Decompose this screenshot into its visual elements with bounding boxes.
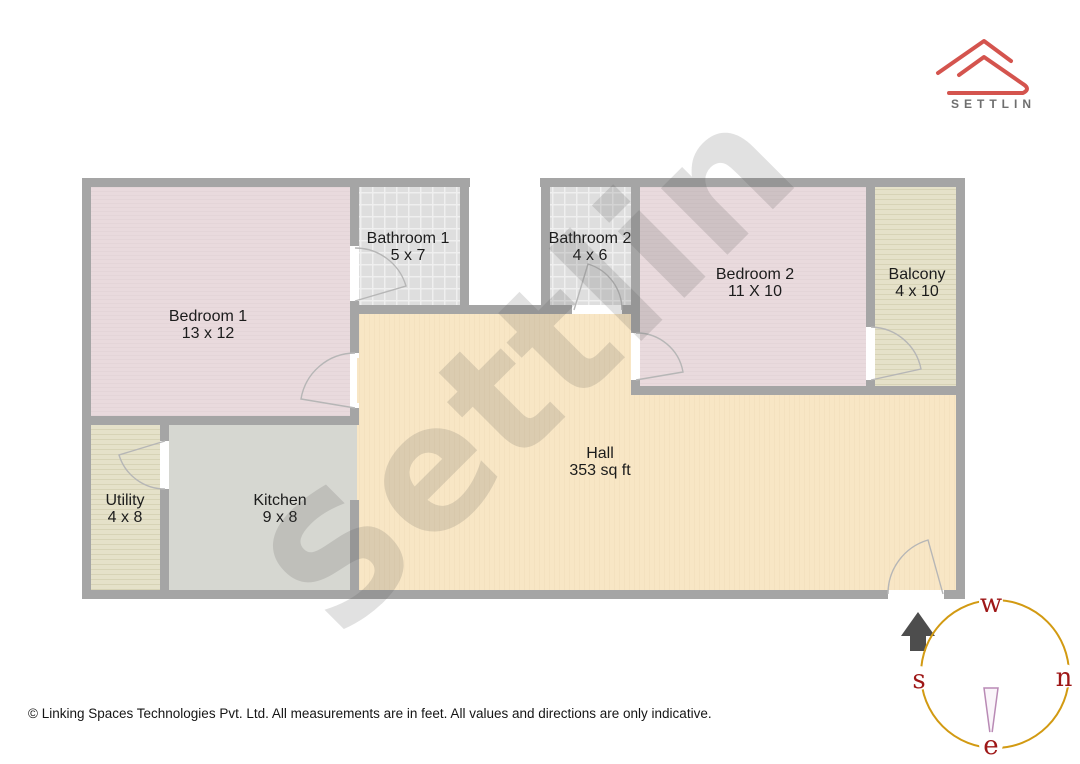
bedroom1-floor [91, 187, 350, 416]
copyright-disclaimer: © Linking Spaces Technologies Pvt. Ltd. … [28, 706, 712, 721]
room-dims: 13 x 12 [169, 325, 247, 342]
floorplan-page: w s n e Bedroom 1 13 x 12 Bathroom 1 5 x… [0, 0, 1080, 764]
room-label-bathroom-1: Bathroom 1 5 x 7 [367, 230, 450, 264]
settlin-logo-icon [938, 41, 1027, 93]
room-name: Kitchen [253, 492, 306, 509]
room-label-bedroom-2: Bedroom 2 11 X 10 [716, 266, 794, 300]
room-name: Bedroom 1 [169, 308, 247, 325]
compass-south-label: s [912, 665, 925, 695]
room-dims: 5 x 7 [367, 247, 450, 264]
room-label-hall: Hall 353 sq ft [569, 445, 630, 479]
room-name: Bathroom 1 [367, 230, 450, 247]
room-name: Balcony [889, 266, 946, 283]
compass-west-label: w [980, 589, 1002, 619]
room-label-balcony: Balcony 4 x 10 [889, 266, 946, 300]
compass-east-label: e [983, 731, 998, 761]
room-dims: 353 sq ft [569, 462, 630, 479]
room-dims: 4 x 6 [549, 247, 632, 264]
floorplan-drawing: w s n e [0, 0, 1080, 764]
room-name: Bathroom 2 [549, 230, 632, 247]
room-name: Utility [105, 492, 144, 509]
room-label-utility: Utility 4 x 8 [105, 492, 144, 526]
room-dims: 4 x 8 [105, 509, 144, 526]
room-name: Hall [569, 445, 630, 462]
room-label-kitchen: Kitchen 9 x 8 [253, 492, 306, 526]
room-label-bedroom-1: Bedroom 1 13 x 12 [169, 308, 247, 342]
compass-north-label: n [1056, 663, 1073, 693]
brand-wordmark: SETTLIN [951, 97, 1041, 111]
room-label-bathroom-2: Bathroom 2 4 x 6 [549, 230, 632, 264]
room-name: Bedroom 2 [716, 266, 794, 283]
compass-rose: w s n e [907, 589, 1076, 761]
room-dims: 9 x 8 [253, 509, 306, 526]
compass-letters: w s n e [912, 589, 1072, 761]
entrance-arrow-icon [901, 612, 935, 651]
room-dims: 11 X 10 [716, 283, 794, 300]
room-dims: 4 x 10 [889, 283, 946, 300]
compass-circle [921, 600, 1069, 748]
